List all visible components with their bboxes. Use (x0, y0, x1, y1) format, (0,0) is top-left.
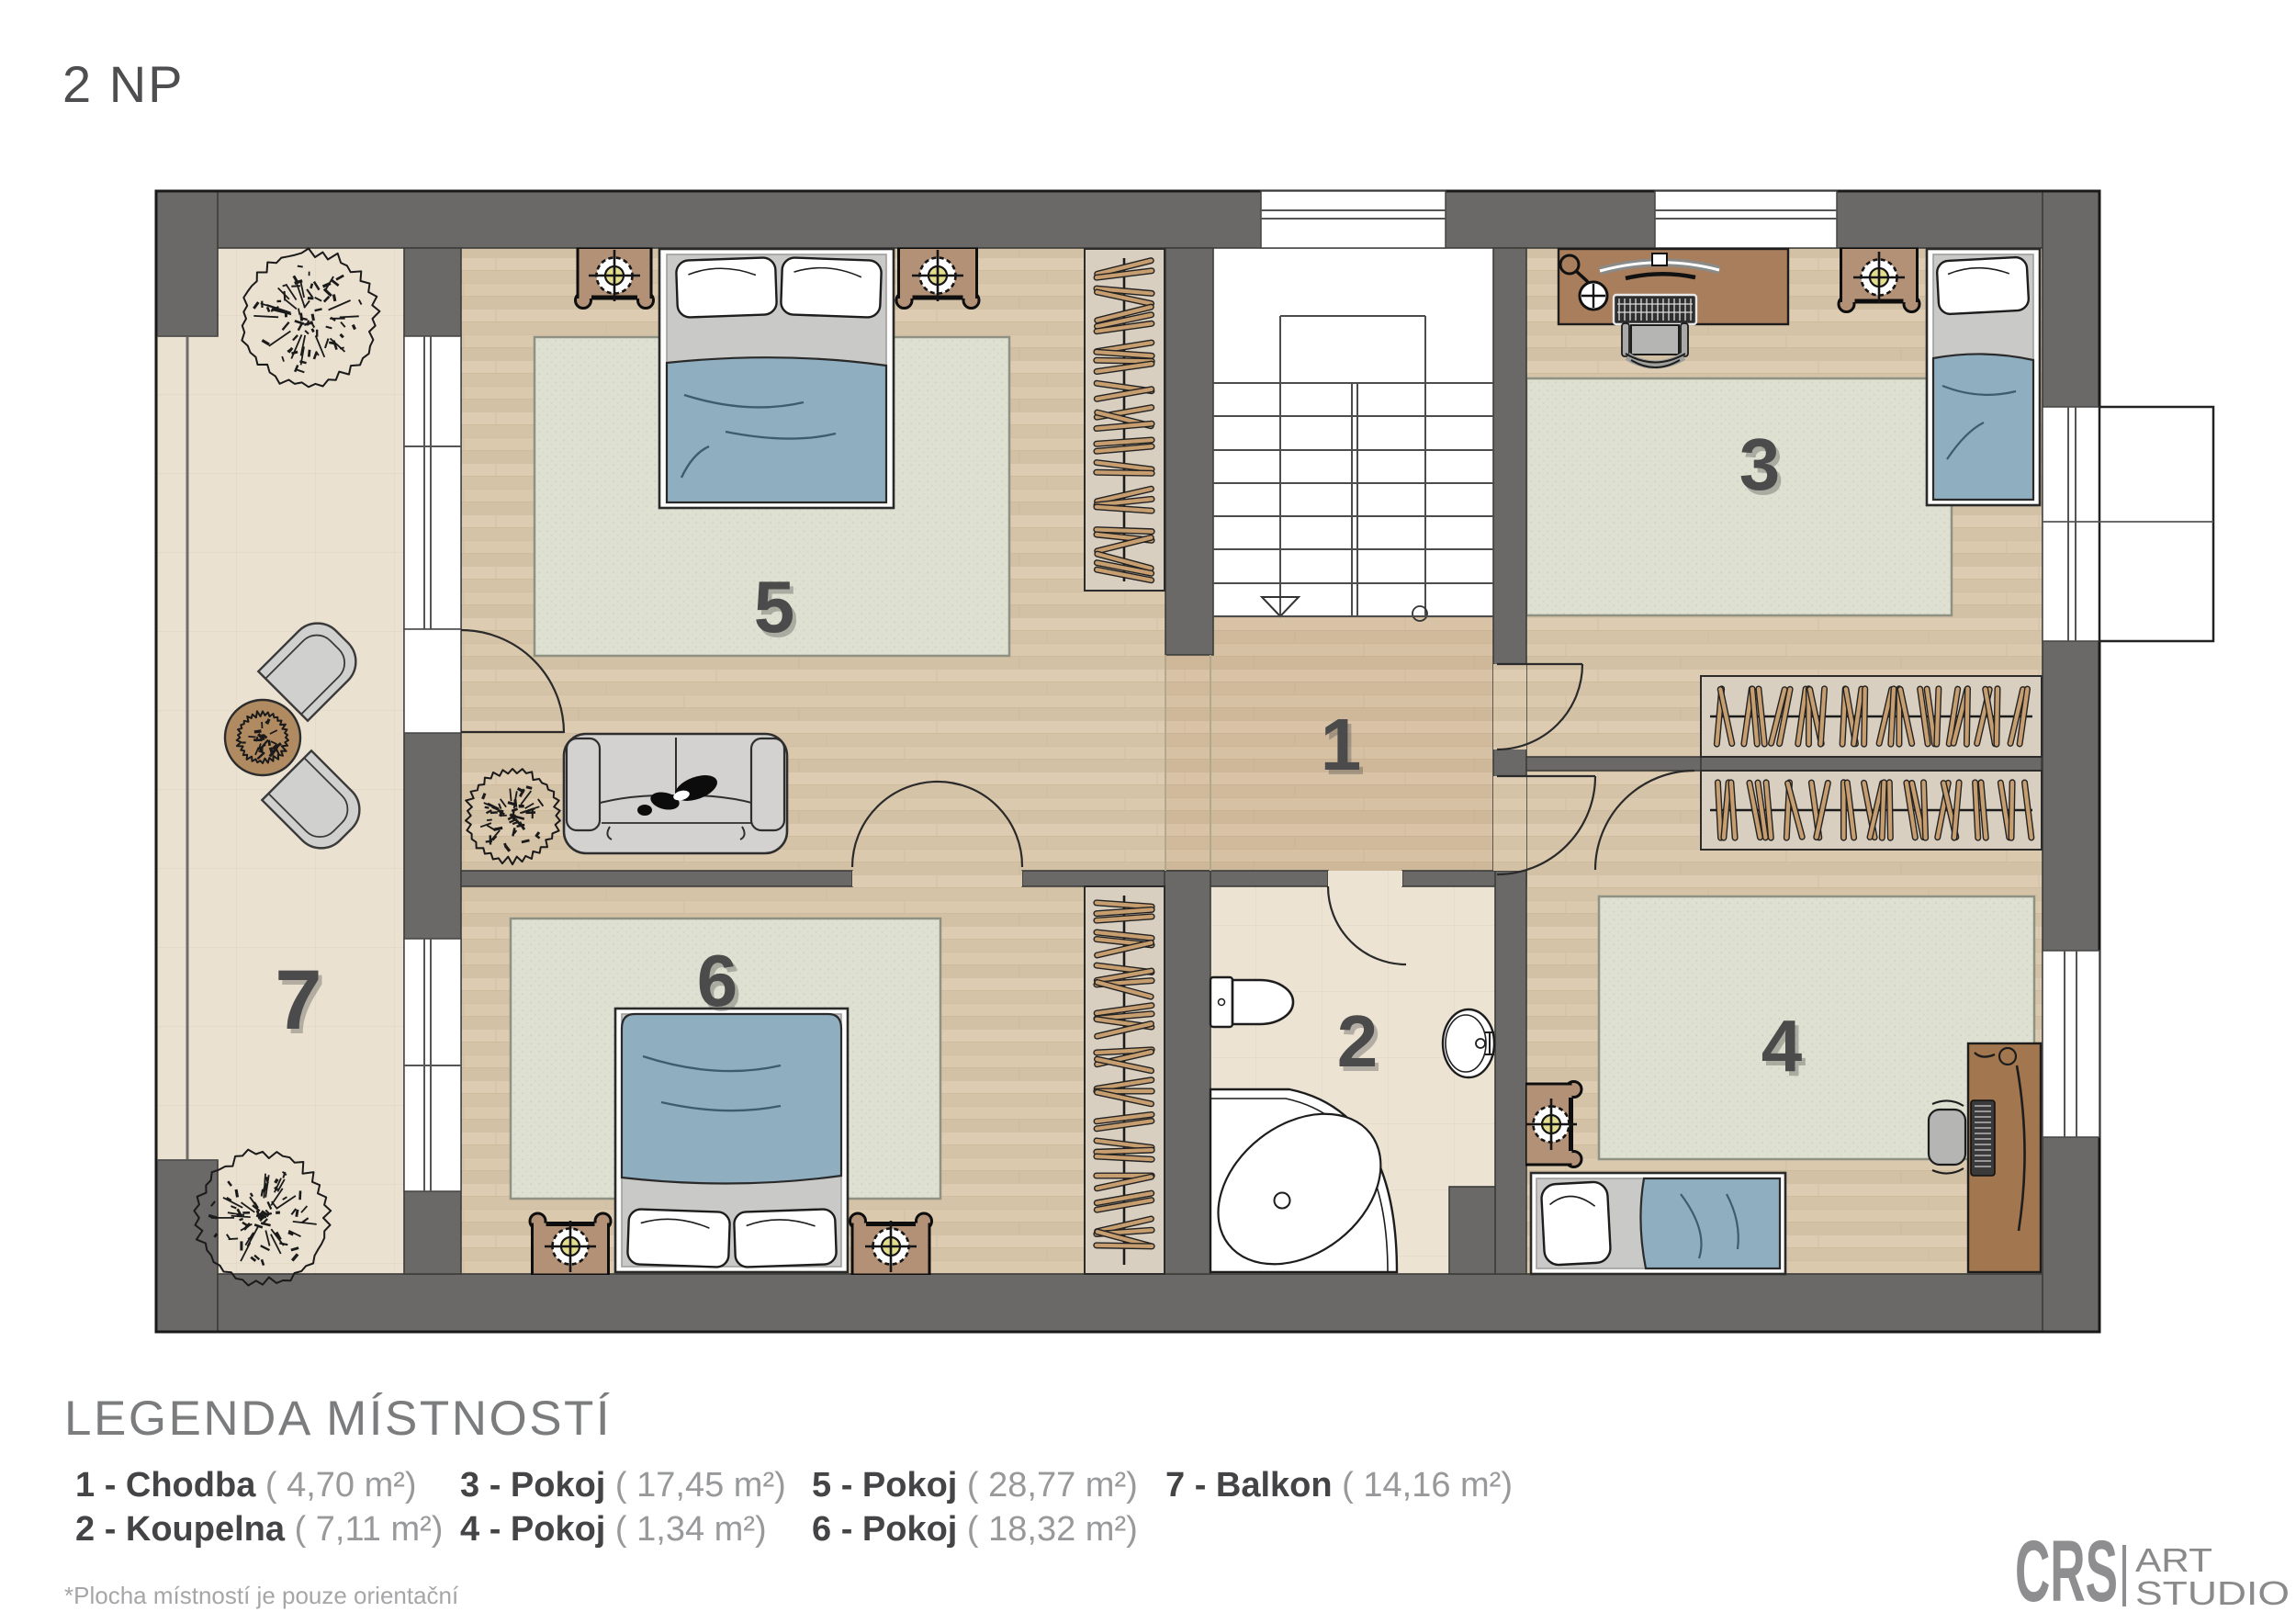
svg-text:1: 1 (1321, 704, 1362, 785)
svg-text:1 - Chodba ( 4,70 m²): 1 - Chodba ( 4,70 m²) (75, 1466, 417, 1505)
svg-text:*Plocha místností je pouze ori: *Plocha místností je pouze orientační (64, 1582, 459, 1609)
svg-text:LEGENDA MÍSTNOSTÍ: LEGENDA MÍSTNOSTÍ (64, 1392, 612, 1446)
svg-text:5: 5 (754, 566, 795, 648)
svg-text:2 - Koupelna ( 7,11 m²): 2 - Koupelna ( 7,11 m²) (75, 1510, 443, 1549)
svg-text:4: 4 (1761, 1005, 1803, 1087)
svg-text:6 - Pokoj ( 18,32 m²): 6 - Pokoj ( 18,32 m²) (812, 1510, 1138, 1549)
svg-text:STUDIO: STUDIO (2135, 1574, 2290, 1612)
svg-text:5 - Pokoj ( 28,77 m²): 5 - Pokoj ( 28,77 m²) (812, 1466, 1138, 1505)
svg-text:6: 6 (697, 940, 738, 1021)
svg-text:2: 2 (1337, 1000, 1379, 1082)
svg-text:3 - Pokoj ( 17,45 m²): 3 - Pokoj ( 17,45 m²) (460, 1466, 786, 1505)
svg-text:4 - Pokoj ( 1,34 m²): 4 - Pokoj ( 1,34 m²) (460, 1510, 767, 1549)
svg-text:7 - Balkon ( 14,16 m²): 7 - Balkon ( 14,16 m²) (1165, 1466, 1513, 1505)
svg-text:2 NP: 2 NP (62, 55, 185, 113)
svg-text:CRS: CRS (2015, 1523, 2118, 1620)
svg-text:ART: ART (2135, 1541, 2212, 1579)
svg-text:3: 3 (1739, 423, 1781, 505)
svg-text:7: 7 (275, 953, 321, 1047)
